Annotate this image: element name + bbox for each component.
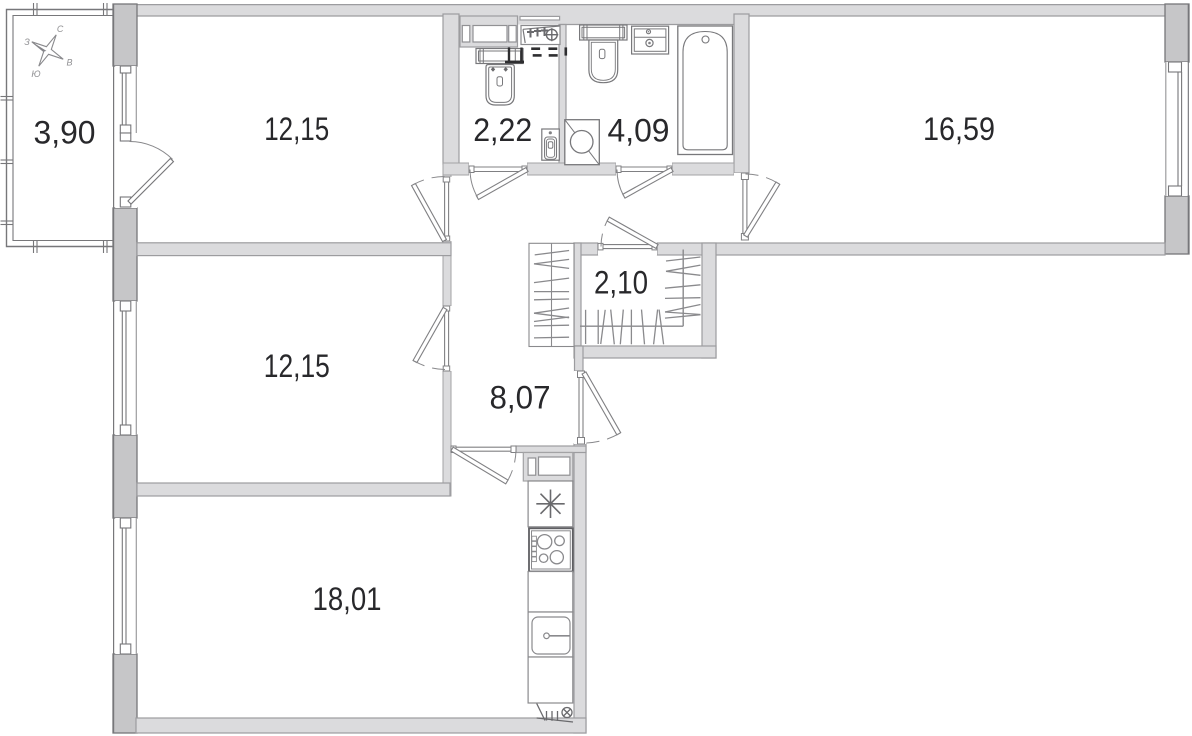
svg-text:В: В xyxy=(66,58,72,68)
svg-text:4,09: 4,09 xyxy=(608,113,670,149)
svg-text:8,07: 8,07 xyxy=(490,380,551,416)
svg-text:Ю: Ю xyxy=(31,69,40,79)
svg-text:2,22: 2,22 xyxy=(473,112,532,148)
svg-text:18,01: 18,01 xyxy=(313,581,382,617)
svg-text:12,15: 12,15 xyxy=(264,111,329,147)
svg-text:2,10: 2,10 xyxy=(594,265,648,301)
svg-text:3,90: 3,90 xyxy=(34,115,96,151)
svg-text:16,59: 16,59 xyxy=(923,111,995,147)
svg-text:З: З xyxy=(24,37,30,47)
svg-text:12,15: 12,15 xyxy=(264,348,330,384)
svg-text:С: С xyxy=(57,24,64,34)
